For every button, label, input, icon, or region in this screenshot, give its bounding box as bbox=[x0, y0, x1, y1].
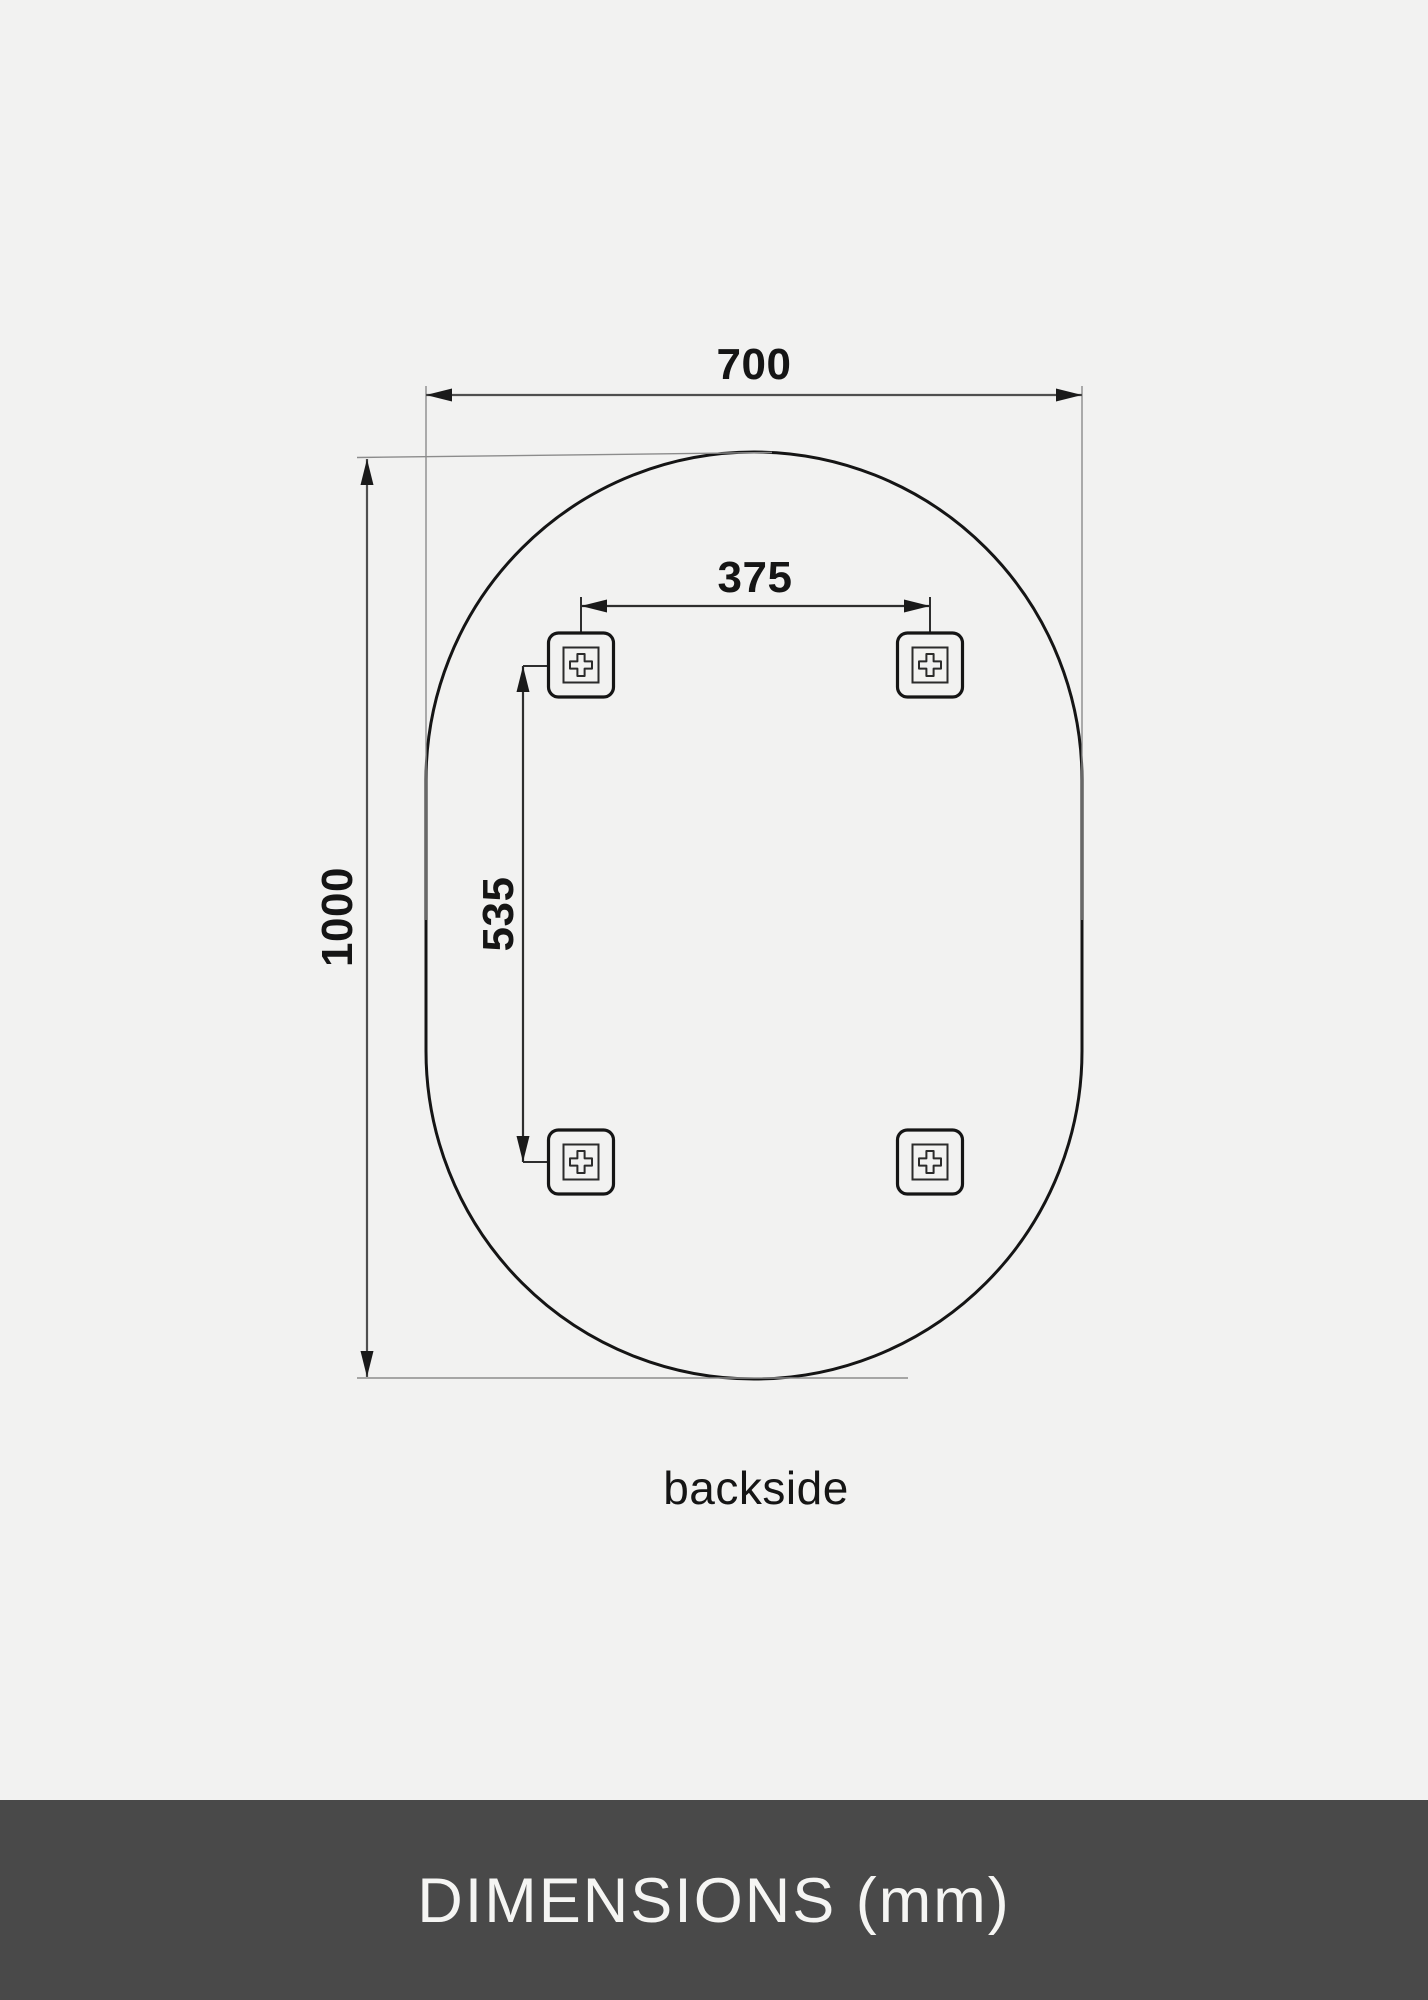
width-dimension-label: 700 bbox=[717, 340, 792, 389]
mounting-bracket-top-left bbox=[549, 633, 614, 697]
bracket-plate bbox=[549, 633, 614, 697]
arrow-up-icon bbox=[361, 459, 374, 485]
bracket-spacing-horizontal-label: 375 bbox=[718, 553, 793, 602]
dimension-diagram-page: 700 1000 375 535 bbox=[0, 0, 1428, 2000]
arrow-right-icon bbox=[1056, 389, 1082, 402]
bracket-plate bbox=[898, 1130, 963, 1194]
height-dimension-label: 1000 bbox=[313, 867, 362, 967]
bracket-spacing-vertical-label: 535 bbox=[474, 877, 523, 952]
mounting-bracket-bottom-right bbox=[898, 1130, 963, 1194]
arrow-down-icon bbox=[517, 1136, 530, 1162]
backside-label: backside bbox=[663, 1462, 849, 1514]
width-dimension: 700 bbox=[426, 340, 1082, 920]
mounting-bracket-bottom-left bbox=[549, 1130, 614, 1194]
arrow-right-icon bbox=[904, 600, 930, 613]
dimension-diagram: 700 1000 375 535 bbox=[0, 0, 1428, 2000]
bracket-plate bbox=[549, 1130, 614, 1194]
footer-bar: DIMENSIONS (mm) bbox=[0, 1800, 1428, 2000]
arrow-left-icon bbox=[581, 600, 607, 613]
arrow-up-icon bbox=[517, 666, 530, 692]
bracket-spacing-vertical-dimension: 535 bbox=[474, 666, 548, 1162]
bracket-plate bbox=[898, 633, 963, 697]
mounting-bracket-top-right bbox=[898, 633, 963, 697]
bracket-spacing-horizontal-dimension: 375 bbox=[581, 553, 930, 632]
dimensions-title: DIMENSIONS (mm) bbox=[417, 1866, 1010, 1936]
height-dimension: 1000 bbox=[313, 453, 908, 1379]
arrow-left-icon bbox=[426, 389, 452, 402]
arrow-down-icon bbox=[361, 1351, 374, 1377]
